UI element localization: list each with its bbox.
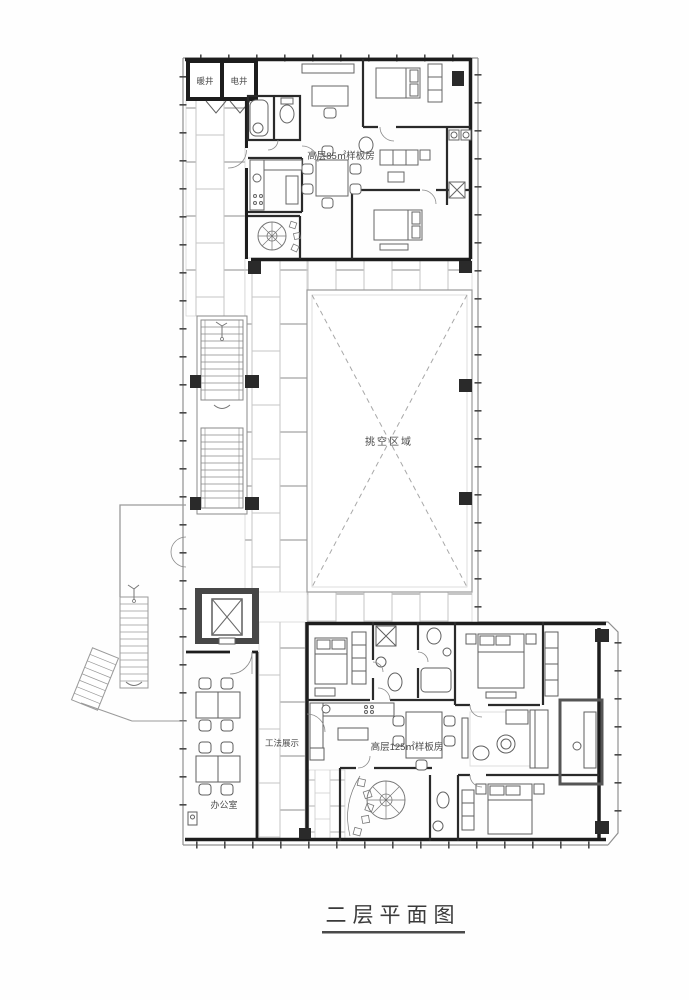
apartment-125: 高层125㎡样板房 bbox=[185, 622, 606, 841]
plan-title: 二层平面图 bbox=[326, 904, 461, 927]
plan-title-block: 二层平面图 bbox=[322, 904, 465, 934]
floor-plan-drawing: 挑空区域 暖井 电井 bbox=[0, 0, 689, 1000]
shaft-right-label: 电井 bbox=[230, 76, 247, 86]
shaft-left-label: 暖井 bbox=[196, 76, 213, 86]
void-area: 挑空区域 bbox=[307, 290, 472, 592]
office: 办公室 bbox=[186, 652, 258, 841]
void-area-label: 挑空区域 bbox=[365, 435, 413, 448]
apartment-125-plant bbox=[348, 776, 405, 836]
floor-plan-page: 挑空区域 暖井 电井 bbox=[0, 0, 689, 1000]
title-underline bbox=[322, 931, 465, 934]
apartment-125-label: 高层125㎡样板房 bbox=[371, 741, 444, 753]
office-door-arc bbox=[230, 652, 252, 674]
exterior-stair bbox=[72, 505, 186, 721]
apartment-85-plant bbox=[258, 221, 301, 252]
office-label: 办公室 bbox=[210, 799, 237, 810]
construction-display-label: 工法展示 bbox=[265, 738, 299, 748]
main-stairs bbox=[197, 316, 247, 514]
apartment-85-label: 高层85㎡样板房 bbox=[307, 150, 375, 162]
elevator bbox=[195, 588, 259, 644]
apartment-125-furniture bbox=[310, 626, 596, 834]
